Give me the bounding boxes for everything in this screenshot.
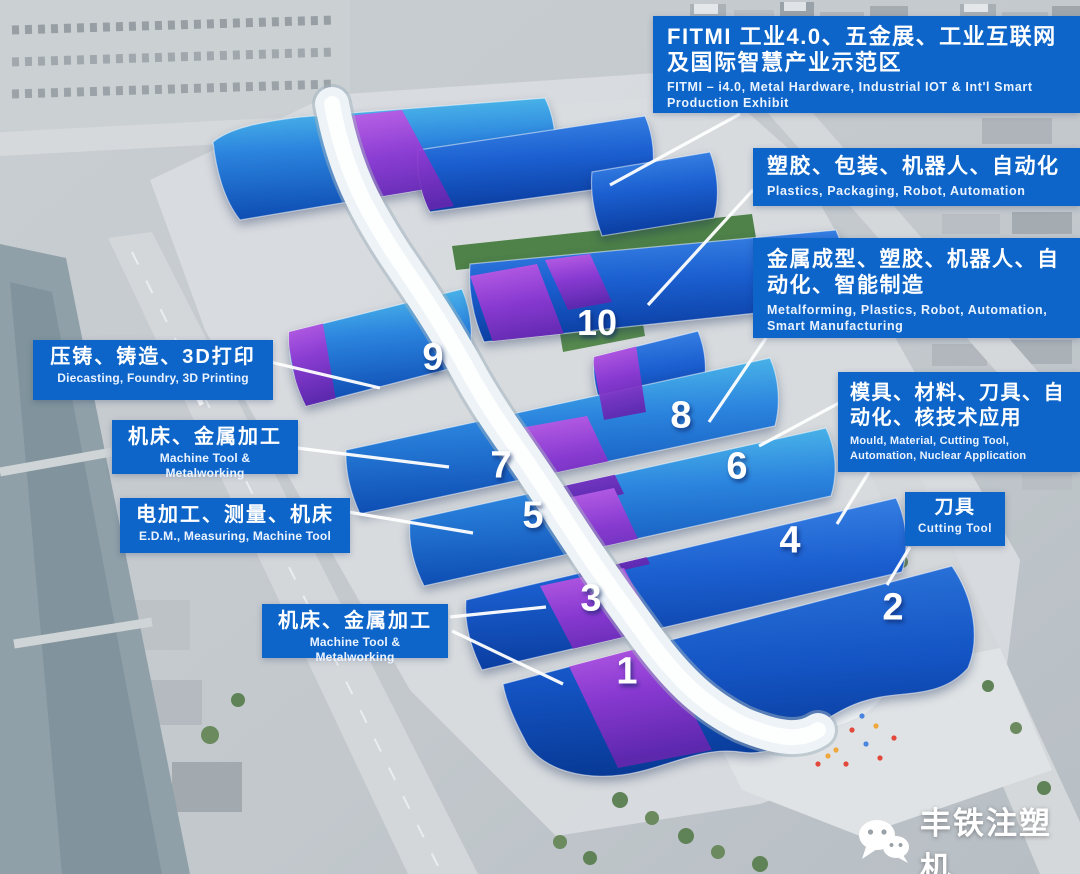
hall-number-10: 10 [577,302,617,344]
label-cutting-tool-zone: 刀具 Cutting Tool [905,492,1005,546]
label-mould-cn: 模具、材料、刀具、自动化、核技术应用 [850,381,1070,431]
label-machinetool-top-en: Machine Tool & Metalworking [120,451,290,481]
label-fitmi-zone: FITMI 工业4.0、五金展、工业互联网及国际智慧产业示范区 FITMI – … [653,16,1080,113]
hall-number-2: 2 [882,587,903,630]
hall-number-3: 3 [580,578,601,621]
hall-number-8: 8 [670,395,691,438]
exhibition-venue-map: 1 2 3 4 5 6 7 8 9 10 FITMI 工业4.0、五金展、工业互… [0,0,1080,874]
hall-number-5: 5 [522,495,543,538]
label-metalforming-zone: 金属成型、塑胶、机器人、自动化、智能制造 Metalforming, Plast… [753,238,1080,338]
label-metalforming-cn: 金属成型、塑胶、机器人、自动化、智能制造 [767,247,1066,299]
label-cutting-cn: 刀具 [909,496,1001,520]
label-cutting-en: Cutting Tool [909,521,1001,537]
hall-number-1: 1 [616,651,637,694]
label-edm-en: E.D.M., Measuring, Machine Tool [128,529,342,544]
label-plastics-cn: 塑胶、包装、机器人、自动化 [767,154,1066,180]
label-edm-zone: 电加工、测量、机床 E.D.M., Measuring, Machine Too… [120,498,350,553]
label-fitmi-en: FITMI – i4.0, Metal Hardware, Industrial… [667,79,1066,111]
hall-number-6: 6 [726,446,747,489]
label-diecasting-zone: 压铸、铸造、3D打印 Diecasting, Foundry, 3D Print… [33,340,273,400]
label-machinetool-bottom-zone: 机床、金属加工 Machine Tool & Metalworking [262,604,448,658]
label-machinetool-top-cn: 机床、金属加工 [120,425,290,450]
watermark: 丰铁注塑机 [858,798,1080,874]
label-mould-en: Mould, Material, Cutting Tool, Automatio… [850,434,1070,463]
watermark-text: 丰铁注塑机 [920,798,1080,874]
label-fitmi-cn: FITMI 工业4.0、五金展、工业互联网及国际智慧产业示范区 [667,24,1066,76]
hall-number-9: 9 [422,337,443,380]
hall-number-7: 7 [490,445,511,488]
wechat-icon [858,818,910,869]
label-metalforming-en: Metalforming, Plastics, Robot, Automatio… [767,302,1066,334]
label-machinetool-bottom-en: Machine Tool & Metalworking [270,635,440,665]
label-machinetool-bottom-cn: 机床、金属加工 [270,609,440,634]
label-diecasting-en: Diecasting, Foundry, 3D Printing [41,371,265,386]
label-plastics-en: Plastics, Packaging, Robot, Automation [767,183,1066,199]
label-machinetool-top-zone: 机床、金属加工 Machine Tool & Metalworking [112,420,298,474]
label-diecasting-cn: 压铸、铸造、3D打印 [41,345,265,370]
label-plastics-zone: 塑胶、包装、机器人、自动化 Plastics, Packaging, Robot… [753,148,1080,206]
label-mould-zone: 模具、材料、刀具、自动化、核技术应用 Mould, Material, Cutt… [838,372,1080,472]
label-edm-cn: 电加工、测量、机床 [128,503,342,528]
hall-number-4: 4 [779,520,800,563]
